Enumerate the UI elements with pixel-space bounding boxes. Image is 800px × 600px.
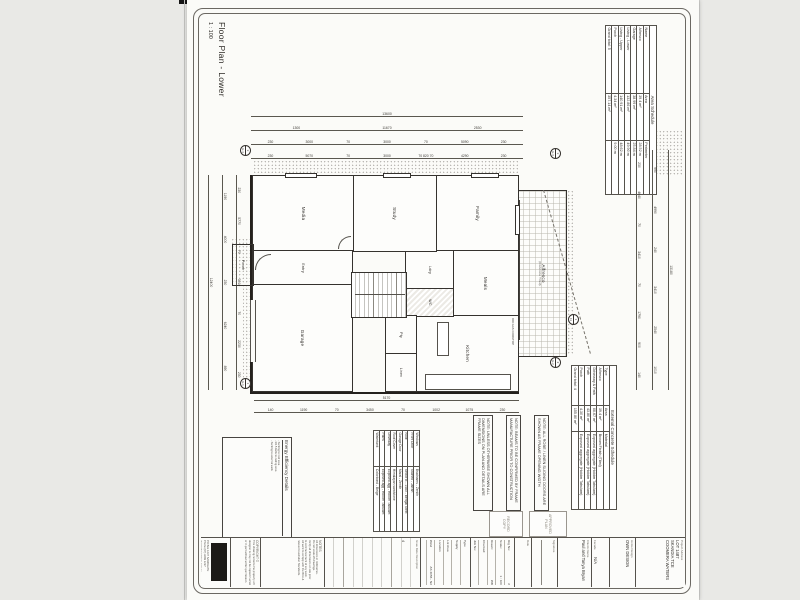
cell: Himalayan sandstone: [391, 467, 397, 532]
dim-value: 3410: [653, 270, 657, 310]
dim-value: 70: [637, 210, 641, 240]
field-row: Job No:: [470, 540, 478, 585]
record-copy-stamp: RECORD COPY: [489, 511, 523, 537]
table-row: Type Area Material: [603, 366, 609, 510]
field-row: Drg No:2: [504, 540, 513, 585]
dim-value: 1075: [453, 408, 486, 412]
room-study: Study: [352, 175, 437, 252]
cell: [606, 140, 612, 194]
staircase: [351, 272, 407, 318]
cell: 39.4 m²: [637, 93, 643, 140]
dim-value: 140: [637, 360, 641, 390]
room-alfresco: Alfresco(Concrete Tiled): [516, 190, 567, 357]
table-row: Driveway & Path66.67 m²Exposed aggregate…: [591, 366, 597, 510]
dim-value: 4640: [637, 180, 641, 210]
room-wc: WC: [405, 288, 454, 317]
window: [285, 173, 317, 178]
elevation-marker: 3E-4: [240, 145, 251, 156]
revision-entry: 4: [401, 540, 405, 542]
dimension-chain: 14011907034507010021075230: [254, 406, 519, 413]
dim-value: 2540: [653, 310, 657, 350]
cell: Broom Finish (Tiled): [597, 432, 603, 510]
room-label: Media: [300, 207, 306, 221]
cell: 4.34 m²: [612, 93, 618, 140]
date-box: Date: [514, 538, 531, 587]
dim-value: 240: [653, 230, 657, 270]
dimension-chain: 13180: [668, 150, 675, 390]
dimension-chain: 2303000703000705090230: [251, 138, 523, 145]
cell: Bradnams - Zenith: [414, 467, 420, 532]
company-section: PO Box 1237 SANDGATEPhone (07) 3269 1237…: [201, 538, 230, 587]
elevation-marker: 1E-1: [240, 378, 251, 389]
cell: Porch: [578, 366, 584, 406]
dim-value: 70: [387, 408, 420, 412]
table-row: Porch4.30 m²Exposed aggregate (Holcim Ta…: [578, 366, 584, 510]
cell: 49.90 m: [624, 140, 630, 194]
dim-value: 900: [637, 330, 641, 360]
energy-items: - Sarking to roof area- R2.5 batts to ce…: [270, 440, 281, 536]
total-value: 155.80 m²: [572, 406, 578, 432]
col-header: Name: [643, 26, 649, 94]
dimension-chain: 9904990240341025401010: [652, 150, 659, 390]
dim-value: 3000: [290, 140, 329, 144]
dim-value: 2530: [432, 126, 523, 130]
garage-door: [250, 300, 256, 362]
elevation-marker: 3E-3: [550, 148, 561, 159]
cell: Stained - Jarrah: [408, 467, 414, 532]
field-row: WindAS 4055 - N2: [426, 540, 435, 585]
room-label: Family: [474, 206, 480, 221]
cell: 4.30 m²: [578, 406, 584, 432]
room-linen: Linen: [385, 353, 417, 392]
dim-value: 1190: [223, 175, 227, 218]
cooktop-note: 900 GAS COOKTOP: [511, 318, 515, 345]
table-title: External Concrete Schedule: [609, 366, 616, 510]
dim-value: 70 820 70: [406, 154, 445, 158]
dim-value: 70: [320, 408, 353, 412]
room-family: Family: [435, 175, 519, 252]
cell: 39.4 m²: [597, 406, 603, 432]
drawing-title: Floor Plan - Lower: [217, 22, 227, 97]
dim-value: 70: [637, 270, 641, 300]
title-block: Project Address LOT 1487 SKANDIA TCE COO…: [201, 537, 685, 587]
room-media: Media: [252, 175, 354, 252]
dim-value: 70: [406, 140, 445, 144]
field-row: Supply: [451, 540, 460, 585]
drawing-sheet: Floor Plan - Lower 1 : 100 Area Schedule…: [187, 0, 699, 600]
cell: Garage Door: [396, 431, 402, 467]
dim-value: 5090: [445, 140, 484, 144]
table-row: PathsExposed agg - Holcim Tabulam: [379, 431, 385, 532]
field-label: Clients Name: [586, 540, 589, 585]
field-label: Project Address: [680, 540, 683, 585]
signature-line: [541, 540, 552, 585]
section-marker: 111: [568, 314, 579, 325]
table-row: Living - Lower132.86 m²49.90 m: [624, 26, 630, 195]
dim-value: 140: [254, 408, 287, 412]
dim-value: 990: [653, 150, 657, 190]
total-label: Grand total: 4: [572, 366, 578, 406]
table-row: Living - Upper140.91 m²48.62 m: [618, 26, 624, 195]
cell: 140.91 m²: [618, 93, 624, 140]
dim-value: 3450: [353, 408, 386, 412]
note-beams: NOTE: BEAMS TO BE CONFIRMED BY FRAME MAN…: [506, 415, 521, 511]
clients-box: Clients Name Paul and Tanya Bryan: [557, 538, 591, 587]
dim-value: 230: [251, 140, 290, 144]
cell: Exposed aggregate (Holcim Tabulam): [591, 432, 597, 510]
room-label: WC: [427, 299, 431, 305]
cell: Living - Upper: [618, 26, 624, 94]
dimension-chain: 5170: [254, 394, 519, 401]
copyright-section: COPYRIGHT © This drawing remains the pro…: [230, 538, 260, 587]
facade: N/A: [594, 557, 599, 564]
cell: Exposed agg - Holcim Tabulam: [385, 467, 391, 532]
dim-value: 4990: [653, 190, 657, 230]
dim-value: 6240: [223, 304, 227, 347]
table-row: RoofSector B - 1480 - Bengal Steel: [402, 431, 408, 532]
col-header: Material: [603, 432, 609, 510]
room-label: Meals: [483, 277, 489, 290]
company-contact-lines: PO Box 1237 SANDGATEPhone (07) 3269 1237…: [201, 540, 210, 585]
home-design: OWN DESIGN: [625, 540, 630, 585]
dim-value: 11670: [342, 126, 433, 130]
room-label: Pty: [399, 332, 403, 338]
cell: 9.00 m: [612, 140, 618, 194]
company-logo: [212, 543, 228, 581]
cell: Maral - Zenith: [396, 467, 402, 532]
room-laundry: Ldry: [405, 250, 454, 290]
text-line: All dimensions in millimetres.: [315, 540, 319, 585]
dim-value: 3410: [637, 240, 641, 270]
dim-value: 230: [237, 175, 241, 206]
room-label: Kitchen: [464, 345, 470, 362]
dimension-chain: 13600: [251, 110, 523, 117]
dim-value: 890: [223, 347, 227, 390]
window: [383, 173, 411, 178]
text-line: - R2.5 batts to ceiling area: [273, 440, 277, 536]
dim-value: 13600: [251, 112, 523, 116]
home-design-box: Home Design OWN DESIGN: [609, 538, 635, 587]
room-label: Ldry: [427, 266, 432, 274]
cell: [572, 432, 578, 510]
field-row: Scale:1 : 100: [495, 540, 504, 585]
dim-value: 230: [486, 408, 519, 412]
dimension-chain: 12400: [208, 175, 215, 390]
dim-value: 5070: [290, 154, 329, 158]
cell: Front Door: [408, 431, 414, 467]
table-row: External Concrete Schedule: [609, 366, 616, 510]
dim-value: 230: [484, 154, 523, 158]
drawing-scale: 1 : 100: [207, 22, 213, 39]
dim-value: 5770: [237, 206, 241, 237]
cell: 66.67 m²: [591, 406, 597, 432]
dim-value: 70: [237, 298, 241, 329]
cell: 38.99 m²: [631, 93, 637, 140]
cell: Watertank: [373, 431, 379, 467]
dim-value: 1300: [251, 126, 342, 130]
table-row: Alfresco39.4 m²Broom Finish (Tiled): [597, 366, 603, 510]
cell: Colorbond - Beige: [373, 467, 379, 532]
dim-value: 1190: [287, 408, 320, 412]
dim-value: 230: [484, 140, 523, 144]
text-line: Phone (07) 3269 1237: [202, 540, 206, 585]
table-row: Grand total: 4155.80 m²: [572, 366, 578, 510]
table-row: WindowsBradnams - Zenith: [414, 431, 420, 532]
total-value: 357.14 m²: [606, 93, 612, 140]
field-row: Lot Area: [443, 540, 452, 585]
cell: 43.80 m²: [584, 406, 590, 432]
field-label: Home Design: [630, 540, 633, 585]
dim-value: 230: [637, 150, 641, 180]
facade-box: Facade N/A: [591, 538, 609, 587]
col-header: Type: [603, 366, 609, 406]
dimension-chain: 230507070300070 820 704290230: [251, 152, 523, 159]
text-line: PO Box 1237 SANDGATE: [206, 540, 210, 585]
dim-value: 4290: [445, 154, 484, 158]
window: [515, 205, 520, 235]
text-line: designer & may not be copied in whole: [247, 540, 251, 585]
cell: Paths: [379, 431, 385, 467]
room-label: Alfresco(Concrete Tiled): [537, 261, 546, 286]
notes-title: NOTES: [318, 540, 322, 585]
clients-name: Paul and Tanya Bryan: [581, 540, 586, 585]
room-sublabel: (Concrete Tiled): [537, 261, 541, 286]
revision-table: Issue Date Description 4: [324, 538, 420, 587]
cell: Path: [584, 366, 590, 406]
field-label: Date: [526, 540, 529, 585]
table-row: Name Area Perimeter: [643, 26, 649, 195]
table-row: Porch4.34 m²9.00 m: [612, 26, 618, 195]
dim-value: 1002: [420, 408, 453, 412]
room-label: Porch: [241, 260, 245, 270]
cell: Alfresco: [597, 366, 603, 406]
dim-value: 230: [223, 261, 227, 304]
copyright-lines: This drawing remains the property of the…: [244, 540, 255, 585]
cell: Exposed aggregate (Holcim Tabulam): [584, 432, 590, 510]
energy-efficiency-box: Energy Efficiency Details - Sarking to r…: [222, 437, 292, 539]
approved-plan-stamp: APPROVED PLAN: [529, 511, 567, 537]
dimension-chain: 2304640703410701790900140: [636, 150, 643, 390]
notes-lines: All dimensions in millimetres.Do not sca…: [297, 540, 319, 585]
cell: Sector B - 1480 - Bengal Steel: [402, 467, 408, 532]
dim-value: 12400: [209, 175, 213, 390]
dim-value: 70: [329, 154, 368, 158]
field-row: Type: [460, 540, 469, 585]
room-meals: Meals: [452, 250, 519, 317]
text-line: - Sarking to roof area: [277, 440, 281, 536]
room-label: Garage: [300, 330, 306, 347]
dim-value: 1790: [637, 300, 641, 330]
room-label: Study: [392, 207, 398, 220]
table-row: Roof CoverHimalayan sandstone: [391, 431, 397, 532]
dim-value: 230: [251, 154, 290, 158]
dim-value: 4000: [223, 218, 227, 261]
project-address-box: Project Address LOT 1487 SKANDIA TCE COO…: [635, 538, 685, 587]
text-line: or in part without written permission.: [244, 540, 248, 585]
dim-value: 3000: [368, 154, 407, 158]
text-line: Verify all dimensions on site prior: [308, 540, 312, 585]
dim-value: 70: [329, 140, 368, 144]
room-pantry: Pty: [385, 315, 417, 355]
field-label: Facade: [594, 540, 598, 550]
cell: Driveway & Path: [591, 366, 597, 406]
window: [471, 173, 499, 178]
cell: Windows: [414, 431, 420, 467]
cell: Roof: [402, 431, 408, 467]
kitchen-bench: [425, 374, 511, 390]
dim-value: 5170: [254, 396, 519, 400]
col-header: Area: [603, 406, 609, 432]
cell: Driveway: [385, 431, 391, 467]
note-dimensions: NOTE: UNLESS OTHERWISE SHOWN ALL DIMENSI…: [473, 415, 493, 511]
cell: 132.86 m²: [624, 93, 630, 140]
dim-value: 2230: [237, 329, 241, 360]
cell: Porch: [612, 26, 618, 94]
dim-value: 13180: [669, 150, 673, 390]
field-row: Checked:: [478, 540, 487, 585]
table-row: DrivewayExposed agg - Holcim Tabulam: [385, 431, 391, 532]
note-robe-linen: NOTE: ALL ROBE / LINEN SLIDING DOORS ARE…: [534, 415, 549, 511]
text-line: Do not scale off drawings.: [311, 540, 315, 585]
concrete-schedule-table: External Concrete Schedule Type Area Mat…: [571, 365, 617, 510]
site-info-box: Type Supply Lot Area Location WindAS 405…: [420, 538, 470, 587]
dim-value: 1010: [653, 350, 657, 390]
drawing-info-box: Drg No:2 Scale:1 : 100 Drawn:WB Checked:…: [470, 538, 514, 587]
text-line: All work to comply with the BCA &: [300, 540, 304, 585]
col-header: Perimeter: [643, 140, 649, 194]
notes-section: NOTES All dimensions in millimetres.Do n…: [260, 538, 324, 587]
total-label: Grand total: 5: [606, 26, 612, 94]
col-header: Area: [643, 93, 649, 140]
room-garage: Garage: [252, 284, 353, 392]
cell: Living - Lower: [624, 26, 630, 94]
cell: Alfresco: [637, 26, 643, 94]
table-row: Front DoorStained - Jarrah: [408, 431, 414, 532]
elevation-marker: 2E-2: [550, 357, 561, 368]
table-row: WatertankColorbond - Beige: [373, 431, 379, 532]
dim-value: 3000: [368, 140, 407, 144]
table-row: Garage DoorMaral - Zenith: [396, 431, 402, 532]
dimension-chain: 1300116702530: [251, 124, 523, 131]
signature-box: Signature: [531, 538, 557, 587]
field-row: Location: [434, 540, 443, 585]
cell: Garage: [631, 26, 637, 94]
table-row: Grand total: 5357.14 m²: [606, 26, 612, 195]
cell: 48.62 m: [618, 140, 624, 194]
kitchen-island: [437, 322, 449, 356]
alfresco-edge-texture: [567, 190, 574, 355]
finishes-schedule-table: WindowsBradnams - Zenith Front DoorStain…: [373, 430, 420, 532]
energy-title: Energy Efficiency Details: [282, 440, 289, 536]
cell: Exposed aggregate (Holcim Tabulam): [578, 432, 584, 510]
stair-centerline: [355, 294, 405, 295]
text-line: This drawing remains the property of the: [251, 540, 255, 585]
page-edge-shadow-right: [699, 0, 700, 600]
room-porch: Porch: [232, 244, 254, 286]
cell: Exposed agg - Holcim Tabulam: [379, 467, 385, 532]
revision-header: Issue Date Description: [415, 540, 418, 585]
copyright-title: COPYRIGHT ©: [255, 540, 259, 585]
room-label: Entry: [300, 263, 305, 273]
project-address: LOT 1487 SKANDIA TCE COOMERA WATERS: [664, 540, 680, 585]
text-line: - Sarking to external walls: [270, 440, 274, 536]
dimension-chain: 119040002306240890: [222, 175, 229, 390]
room-label: Linen: [399, 368, 403, 377]
area-schedule-table: Area Schedule Name Area Perimeter Alfres…: [605, 25, 657, 195]
field-label: Signature: [552, 540, 555, 585]
table-row: Path43.80 m²Exposed aggregate (Holcim Ta…: [584, 366, 590, 510]
cell: Roof Cover: [391, 431, 397, 467]
page-edge-shadow-left: [184, 0, 185, 600]
field-row: Drawn:WB: [487, 540, 496, 585]
